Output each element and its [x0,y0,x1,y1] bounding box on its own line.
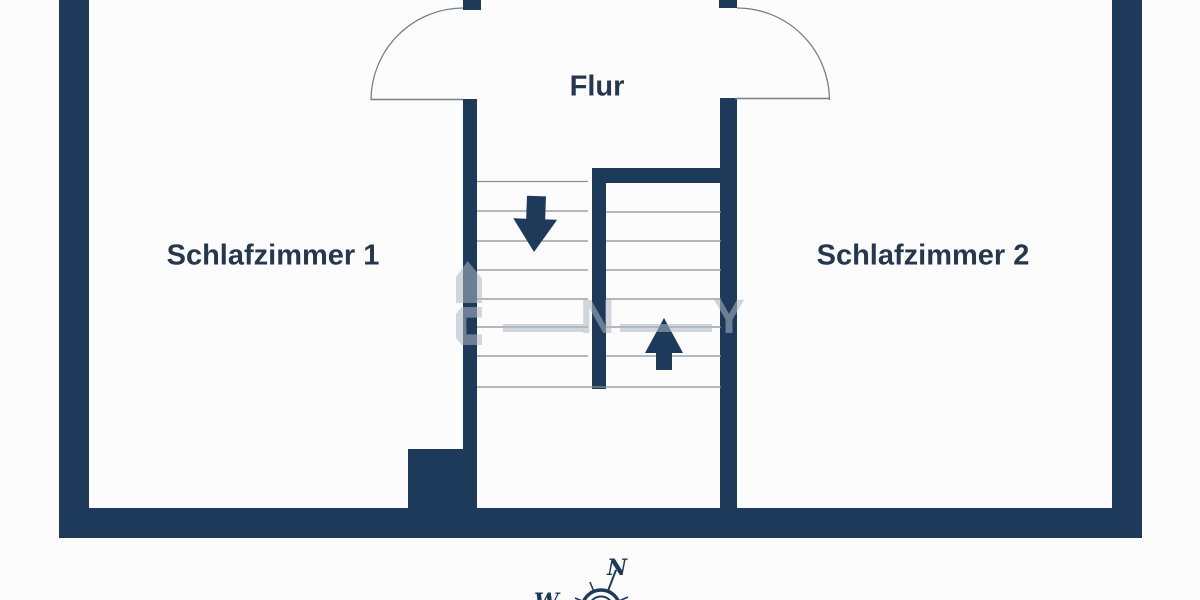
watermark-logo-top [456,261,482,303]
compass-inner-ring [589,597,614,600]
compass-rose-icon: N W [534,555,628,600]
door-arc-left [371,8,463,100]
watermark-dash [503,324,587,332]
compass-north-label: N [606,555,628,581]
outer-wall-bottom [59,508,1142,538]
door-jamb-left [463,0,481,10]
door-jamb-right [719,0,737,8]
stair-center-divider [592,168,606,389]
compass-west-label: W [534,589,561,600]
outer-wall-left [59,0,89,538]
compass-outer-ring [582,590,620,600]
compass-spoke [590,582,601,600]
down-arrow-icon [512,195,558,253]
watermark-letter: N [580,294,615,342]
room-label-schlafzimmer-2: Schlafzimmer 2 [817,240,1030,273]
stair-treads-right [606,212,721,356]
outer-wall-right [1112,0,1142,538]
compass-spoke-north [601,570,616,600]
door-arc-right [737,8,830,100]
room-label-schlafzimmer-1: Schlafzimmer 1 [167,240,380,273]
floor-plan: N W Schlafzimmer 1 Flur Schlafzimmer 2 N… [0,0,1200,600]
stair-wall-left [463,99,477,508]
stair-top-wall [592,168,737,183]
room-label-flur: Flur [570,71,625,104]
watermark-letter: Y [713,294,745,342]
wall-block [408,449,466,508]
watermark-dash [620,324,712,332]
